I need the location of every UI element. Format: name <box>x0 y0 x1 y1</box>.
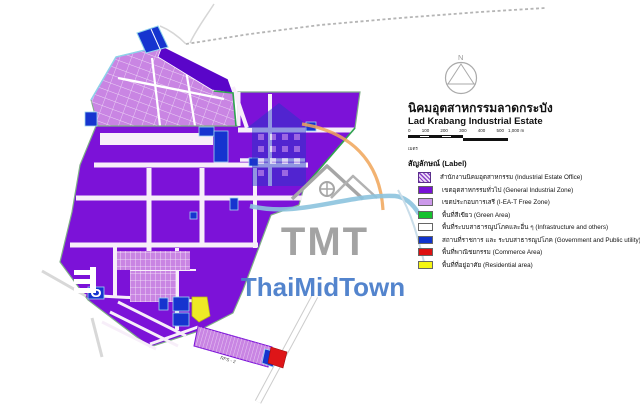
legend-swatch-infra <box>418 223 433 231</box>
scale-unit-label: เมตร <box>408 145 418 152</box>
legend-label: พื้นที่ระบบสาธารณูปโภคและอื่น ๆ (Infrast… <box>442 222 608 232</box>
map-title-english: Lad Krabang Industrial Estate <box>408 116 543 127</box>
scale-bar <box>408 135 508 141</box>
scale-tick: 300 <box>459 128 467 133</box>
scale-tick: 200 <box>440 128 448 133</box>
legend-row: เขตประกอบการเสรี (I-EA-T Free Zone) <box>406 196 638 209</box>
legend-swatch-residential <box>418 261 433 269</box>
scale-tick: 400 <box>478 128 486 133</box>
legend-label: สถานที่ราชการ และ ระบบสาธารณูปโภค (Gover… <box>442 235 640 245</box>
legend-heading: สัญลักษณ์ (Label) <box>408 158 467 170</box>
legend-swatch-government <box>418 236 433 244</box>
legend-row: พื้นที่ระบบสาธารณูปโภคและอื่น ๆ (Infrast… <box>406 221 638 234</box>
legend-swatch-general <box>418 186 433 194</box>
legend-label: เขตประกอบการเสรี (I-EA-T Free Zone) <box>442 197 550 207</box>
legend-swatch-green <box>418 211 433 219</box>
legend-label: เขตอุตสาหกรรมทั่วไป (General Industrial … <box>442 185 573 195</box>
watermark-name: ThaiMidTown <box>228 272 418 303</box>
legend-label: พื้นที่ที่อยู่อาศัย (Residential area) <box>442 260 533 270</box>
watermark-acronym: TMT <box>240 220 410 265</box>
legend-row: เขตอุตสาหกรรมทั่วไป (General Industrial … <box>406 184 638 197</box>
screenshot-root: RPS - 2 <box>0 0 640 408</box>
legend-row: สำนักงานนิคมอุตสาหกรรม (Industrial Estat… <box>406 171 638 184</box>
scale-tick: 100 <box>422 128 430 133</box>
legend-label: สำนักงานนิคมอุตสาหกรรม (Industrial Estat… <box>440 172 582 182</box>
scale-ticks: 0100200300400500 <box>408 128 504 133</box>
legend-label: พื้นที่สีเขียว (Green Area) <box>442 210 510 220</box>
legend-swatch-commerce <box>418 248 433 256</box>
road-top-left <box>190 4 214 43</box>
scale-tick: 0 <box>408 128 411 133</box>
legend-swatch-free-zone <box>418 198 433 206</box>
scale-end-label: 1,000 m <box>508 128 524 133</box>
legend-row: พื้นที่ที่อยู่อาศัย (Residential area) <box>406 259 638 272</box>
infrastructure-comb <box>74 267 96 293</box>
legend-label: พื้นที่พาณิชยกรรม (Commerce Area) <box>442 247 542 257</box>
scale-tick: 500 <box>496 128 504 133</box>
legend-swatch-office <box>418 172 431 183</box>
legend-row: สถานที่ราชการ และ ระบบสาธารณูปโภค (Gover… <box>406 234 638 247</box>
legend-panel: นิคมอุตสาหกรรมลาดกระบัง Lad Krabang Indu… <box>406 0 638 408</box>
legend-row: พื้นที่พาณิชยกรรม (Commerce Area) <box>406 246 638 259</box>
legend-row: พื้นที่สีเขียว (Green Area) <box>406 209 638 222</box>
legend-list: สำนักงานนิคมอุตสาหกรรม (Industrial Estat… <box>406 171 638 271</box>
